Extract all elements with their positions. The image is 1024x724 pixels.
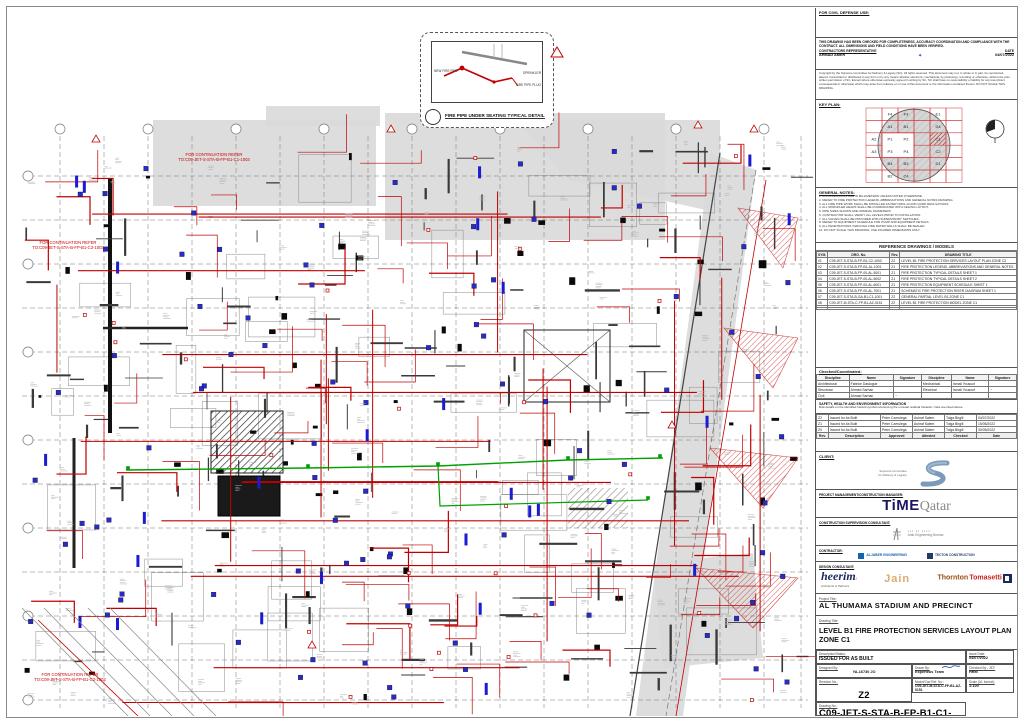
project-title-box: Project Title: AL THUMAMA STADIUM AND PR…: [816, 594, 1017, 616]
svg-text:D1: D1: [935, 161, 941, 166]
compliance-box: THIS DRAWING HAS BEEN CHECKED FOR COMPLE…: [816, 38, 1017, 70]
svg-text:D4: D4: [935, 124, 941, 129]
svg-text:B3: B3: [904, 161, 910, 166]
she-info-box: SAFETY, HEALTH AND ENVIRONMENT INFORMATI…: [816, 400, 1017, 414]
revision-box: Z2Issued for As BuiltPeter CzerulegaAshr…: [816, 414, 1017, 452]
she-text: Risk details on the identified hazard sy…: [819, 406, 1014, 410]
revision-no-value: Z2: [819, 690, 909, 701]
checked-table: DisciplineNameSignature DisciplineNameSi…: [816, 374, 1017, 399]
detail-drawing: NEW FIRE PIPE SPRINKLER FIRE PIPE PLUG: [431, 41, 543, 103]
model-ref-value: C09-JET-M-STA-C-FP-B1-AZ-0151: [915, 684, 963, 692]
svg-text:E1: E1: [936, 112, 942, 117]
aljaber-logo: ALJABER ENGINEERING: [858, 553, 907, 559]
tecton-logo-icon: [927, 553, 933, 559]
detail-label-new-fire-pipe: NEW FIRE PIPE: [434, 70, 458, 74]
contractor-label: CONTRACTOR:: [819, 549, 843, 553]
svg-text:A1: A1: [888, 124, 894, 129]
client-name-line2: for Delivery & Legacy: [878, 474, 907, 478]
revision-no-label: Revision No.:: [819, 680, 909, 684]
key-plan-label: KEY PLAN:: [819, 102, 840, 107]
time-qatar-logo: TiMEQatar: [819, 497, 1014, 515]
csc-name: Arab Engineering Bureau: [908, 534, 944, 538]
aeb-logo-icon: [890, 527, 904, 541]
tecton-logo: TECTON CONSTRUCTION: [927, 553, 975, 559]
aeb-logo: ▪▪▪ ▪▪ ▪▪▪▪ Arab Engineering Bureau: [819, 527, 1014, 541]
svg-text:F4: F4: [888, 112, 893, 117]
status-value: ISSUED FOR AS BUILT: [819, 656, 963, 662]
drawn-by-value: Experteus Team: [915, 670, 963, 674]
drawing-title-box: Drawing Title: LEVEL B1 FIRE PROTECTION …: [816, 616, 1017, 650]
continuation-note-left: FOR CONTINUATION REFERTO:C09-JET-S-STA-B…: [18, 240, 118, 250]
svg-text:A2: A2: [872, 136, 878, 141]
svg-text:C2: C2: [935, 149, 941, 154]
checked-coordinated-box: Checked/Coordinated: DisciplineNameSigna…: [816, 368, 1017, 400]
thornton-tomasetti-icon: [1003, 574, 1012, 583]
reference-drawings-box: REFERENCE DRAWINGS / MODELS SYM. DRG. No…: [816, 243, 1017, 368]
continuation-note-top: FOR CONTINUATION REFERTO:C09-JET-S-STA-B…: [158, 152, 270, 162]
signature-mark: ✦: [918, 53, 922, 59]
thornton-tomasetti-logo: Thornton Tomasetti: [937, 574, 1012, 583]
continuation-note-bottom: FOR CONTINUATION REFERTO:C09-JET-S-STA-B…: [16, 672, 124, 682]
detail-label-fire-pipe-plug: FIRE PIPE PLUG: [516, 84, 541, 88]
detail-bubble-icon: [425, 109, 441, 125]
contractor-box: CONTRACTOR: ALJABER ENGINEERING TECTON C…: [816, 546, 1017, 562]
client-label: CLIENT:: [819, 454, 834, 459]
drawing-title-label: Drawing Title:: [819, 619, 838, 623]
civil-defense-label: FOR CIVIL DEFENSE USE:: [819, 10, 869, 15]
pm-box: PROJECT MANAGEMENT/CONSTRUCTION MANAGER:…: [816, 490, 1017, 518]
civil-defense-box: FOR CIVIL DEFENSE USE:: [816, 8, 1017, 38]
title-block-panel: FOR CIVIL DEFENSE USE: THIS DRAWING HAS …: [815, 8, 1017, 716]
csc-box: CONSTRUCTION SUPERVISION CONSULTANT: ▪▪▪…: [816, 518, 1017, 546]
key-plan-diagram: F4F3E1A1B1D4A2P1P2C1A3P3P4C2B4B3D1B2C4P1…: [854, 106, 974, 184]
svg-text:B1: B1: [904, 124, 910, 129]
svg-text:P4: P4: [904, 149, 910, 154]
copyright-text: Copyright by the Supreme Committee for D…: [819, 72, 1014, 90]
title-block-grid: Description/Status: ISSUED FOR AS BUILT …: [816, 650, 1017, 716]
svg-text:C4: C4: [903, 174, 909, 179]
detail-label-sprinkler: SPRINKLER: [523, 72, 541, 76]
reference-table-title: REFERENCE DRAWINGS / MODELS: [816, 243, 1017, 251]
drawing-no-value: C09-JET-S-STA-B-FP-B1-C1-1003: [819, 708, 963, 716]
general-notes-box: GENERAL NOTES: 1. ALL DIMENSIONS ARE IN …: [816, 188, 1017, 243]
checked-by-value: HRM: [969, 670, 1011, 674]
reference-table: SYM. DRG. No. Rev. DRAWING TITLE 01C09-J…: [816, 251, 1017, 310]
drawing-title-line1: LEVEL B1 FIRE PROTECTION SERVICES LAYOUT…: [819, 626, 1014, 635]
copyright-box: Copyright by the Supreme Committee for D…: [816, 70, 1017, 100]
compliance-statement: THIS DRAWING HAS BEEN CHECKED FOR COMPLE…: [819, 40, 1014, 48]
drawing-sheet: NEW FIRE PIPE SPRINKLER FIRE PIPE PLUG F…: [0, 0, 1024, 724]
svg-text:P1: P1: [888, 136, 894, 141]
revision-triangle-icon: [550, 46, 564, 58]
jain-logo: Jain: [884, 573, 910, 585]
svg-text:B4: B4: [888, 161, 894, 166]
typical-detail-callout: NEW FIRE PIPE SPRINKLER FIRE PIPE PLUG F…: [420, 32, 554, 128]
floor-plan-drawing: [8, 8, 815, 716]
scale-value: 1:100: [969, 684, 1011, 688]
design-consultant-box: DESIGN CONSULTANT: heerim/ Architects & …: [816, 562, 1017, 594]
project-title: AL THUMAMA STADIUM AND PRECINCT: [819, 601, 1014, 610]
floor-plan-area: NEW FIRE PIPE SPRINKLER FIRE PIPE PLUG F…: [8, 8, 815, 716]
north-arrow-icon: [982, 118, 1008, 144]
heerim-logo: heerim/ Architects & Partners: [821, 569, 857, 588]
issue-date-value: 04/07/2022: [969, 656, 1011, 660]
drawn-signature-mark: [941, 664, 961, 670]
svg-text:F3: F3: [904, 112, 909, 117]
svg-text:C1: C1: [935, 136, 941, 141]
drawing-title-line2: ZONE C1: [819, 635, 1014, 644]
client-box: CLIENT: Supreme Committee for Delivery &…: [816, 452, 1017, 490]
revision-table: Z2Issued for As BuiltPeter CzerulegaAshr…: [816, 414, 1017, 439]
supreme-committee-logo: [911, 460, 955, 488]
svg-text:P2: P2: [904, 136, 910, 141]
representative-name: AHMAD AMER: [819, 53, 845, 59]
svg-text:P3: P3: [888, 149, 894, 154]
svg-text:A3: A3: [872, 149, 878, 154]
csc-label: CONSTRUCTION SUPERVISION CONSULTANT:: [819, 521, 890, 525]
aljaber-logo-icon: [858, 553, 864, 559]
compliance-date: 04/07/2022: [995, 53, 1014, 59]
key-plan-box: KEY PLAN: F4F3E1A1B1D4A2P1P2C1A3P3P4C2B4…: [816, 100, 1017, 188]
detail-caption: FIRE PIPE UNDER SEATING TYPICAL DETAIL: [445, 113, 545, 119]
general-notes-list: 1. ALL DIMENSIONS ARE IN MILLIMETERS UNL…: [819, 195, 1014, 233]
designed-by-value: YA-16730 JO: [819, 670, 909, 674]
svg-text:B2: B2: [888, 174, 894, 179]
